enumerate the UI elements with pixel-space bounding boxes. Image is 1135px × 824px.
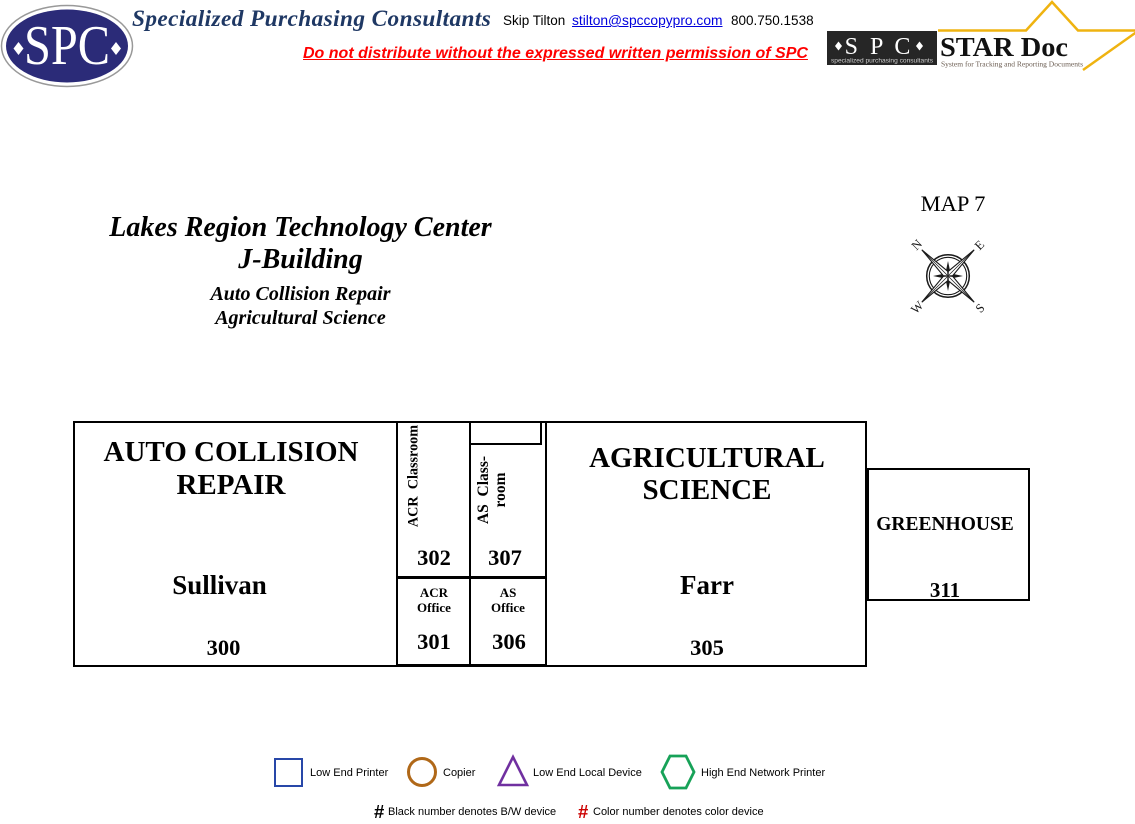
svg-text:S: S [973,301,988,316]
svg-text:System for Tracking and Report: System for Tracking and Reporting Docume… [941,60,1083,69]
svg-text:specialized purchasing consult: specialized purchasing consultants [831,58,933,65]
svg-text:SPC: SPC [24,15,110,77]
svg-text:STAR Doc: STAR Doc [940,32,1068,62]
svg-text:S P C: S P C [845,34,914,60]
